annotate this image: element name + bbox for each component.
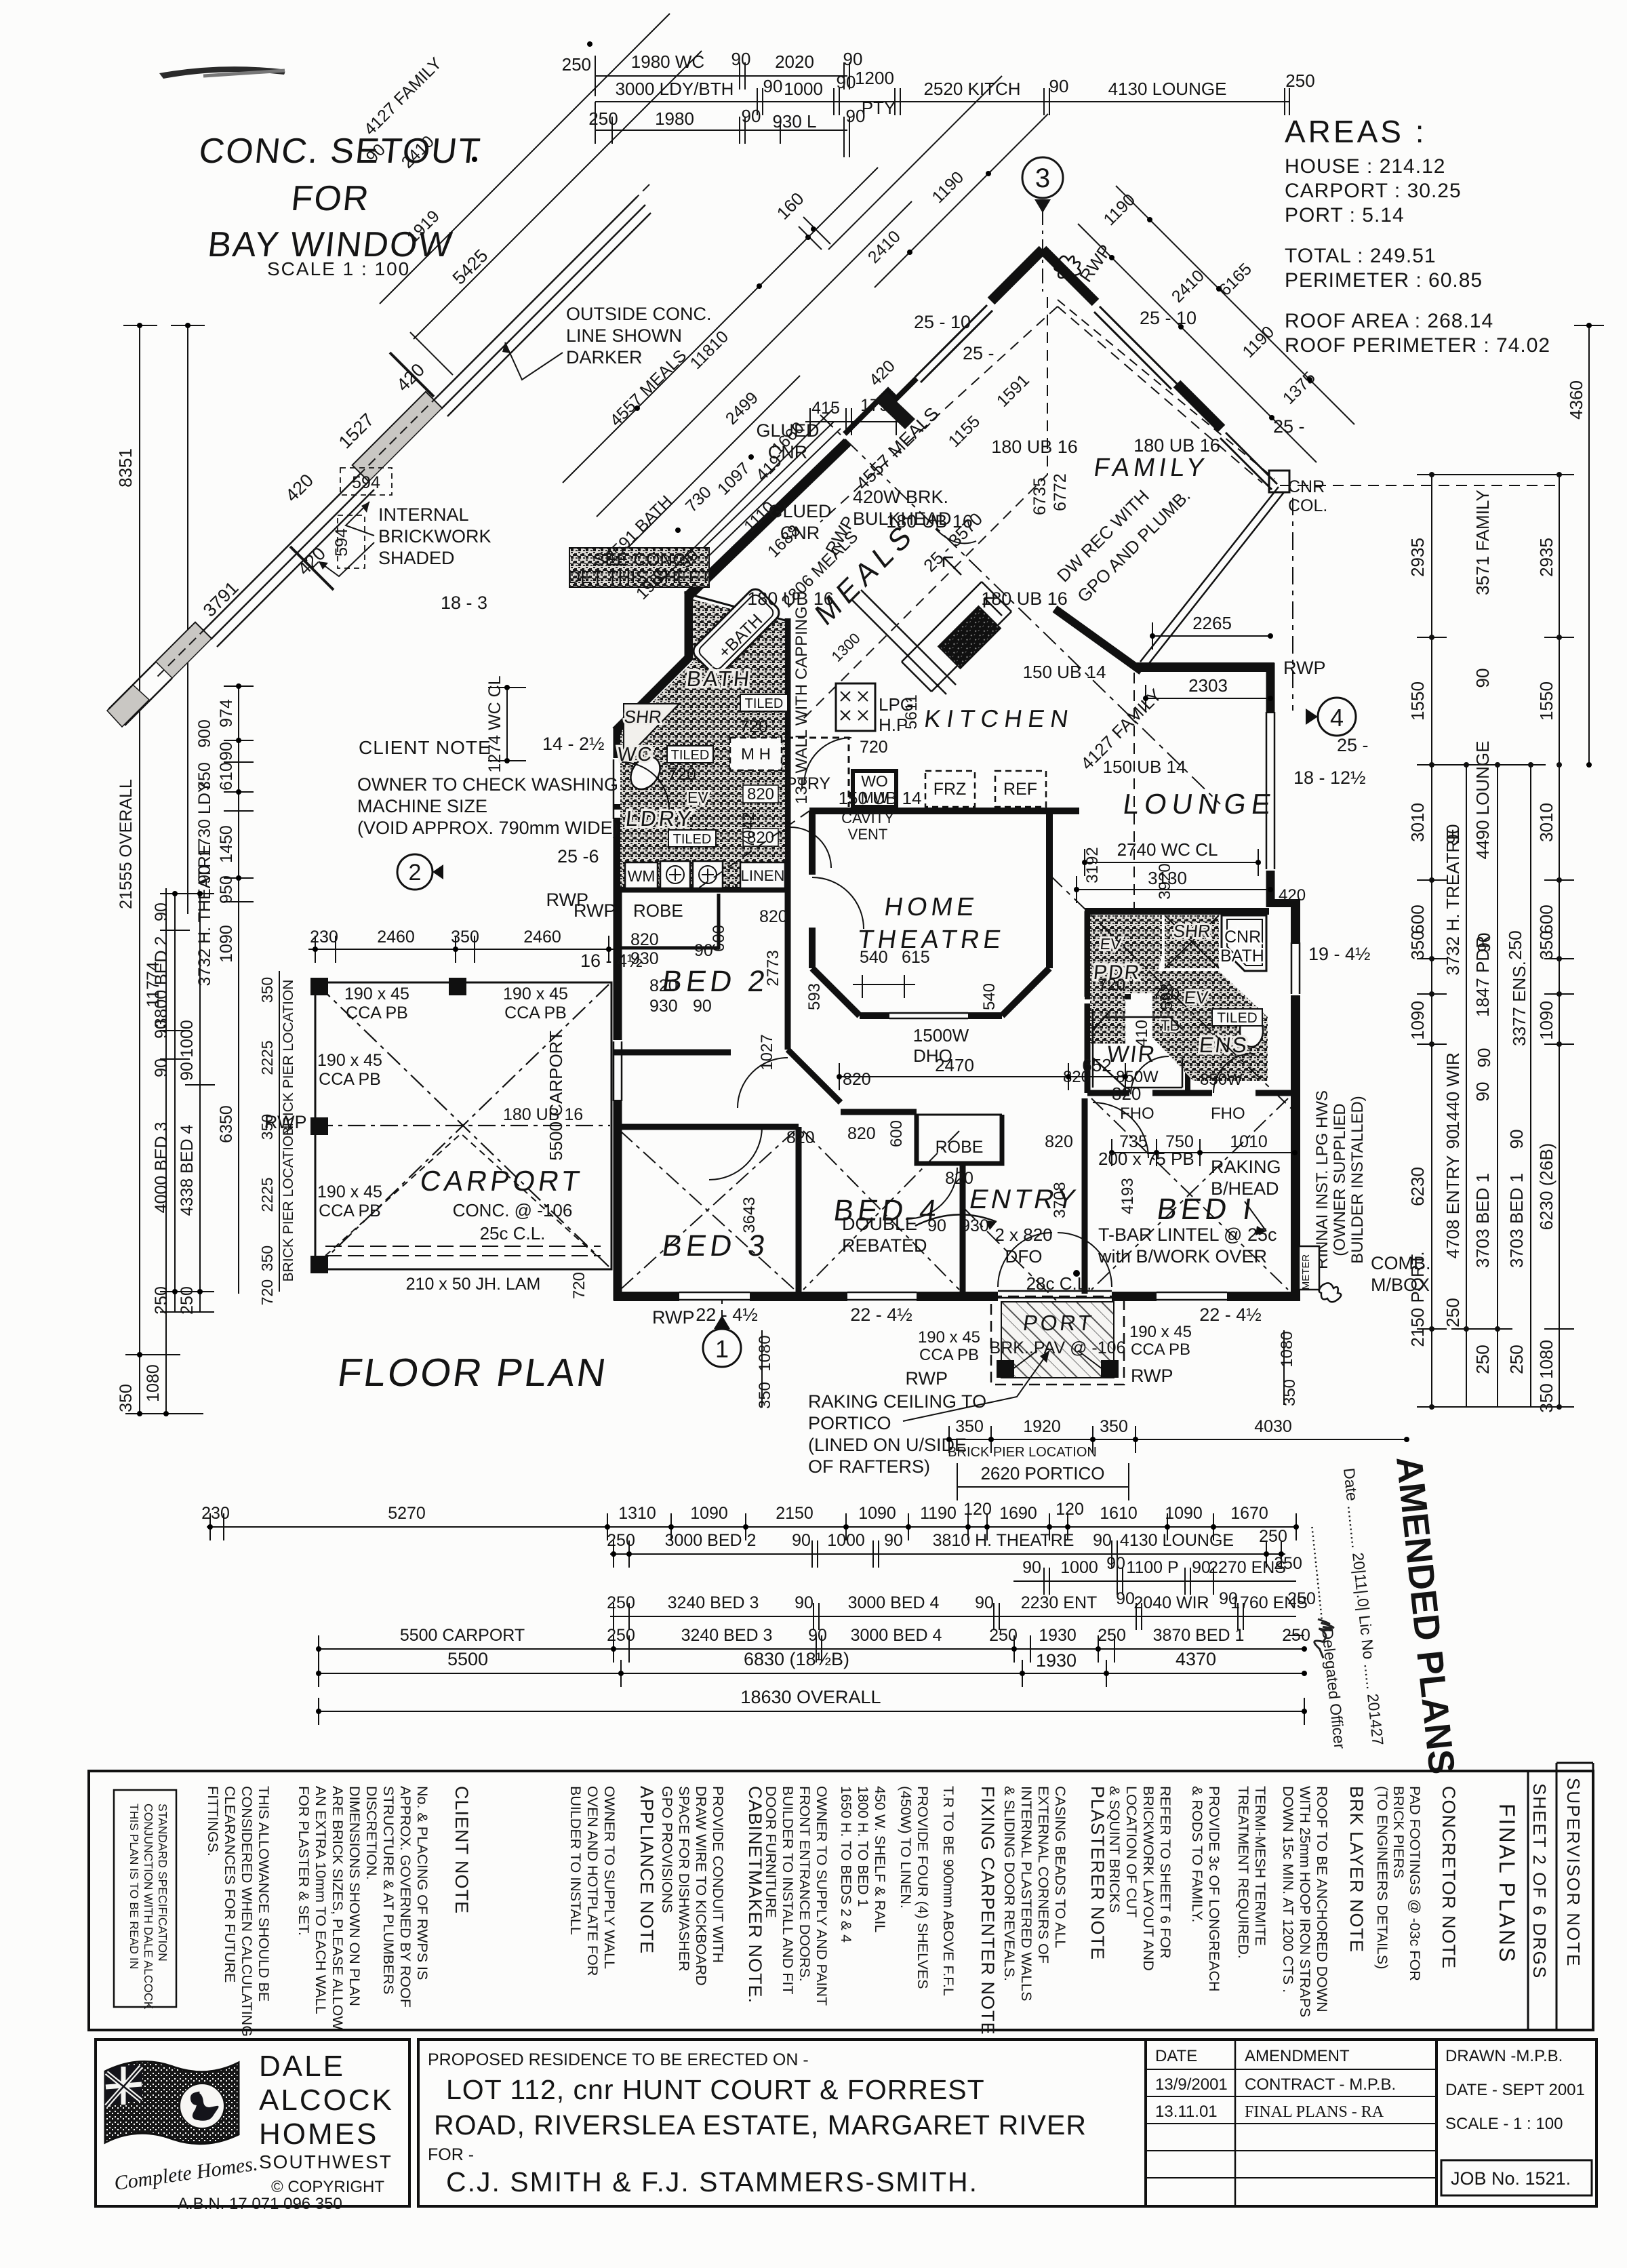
svg-text:RWP: RWP <box>574 900 616 921</box>
svg-text:350: 350 <box>117 1384 136 1412</box>
svg-text:610: 610 <box>217 762 236 791</box>
svg-text:DATE - SEPT 2001: DATE - SEPT 2001 <box>1445 2081 1585 2099</box>
svg-text:BRICK PIER LOCATION: BRICK PIER LOCATION <box>948 1445 1097 1460</box>
svg-text:820: 820 <box>759 907 788 926</box>
svg-text:BATH: BATH <box>685 667 752 691</box>
svg-text:3800 BED 2: 3800 BED 2 <box>152 936 171 1028</box>
svg-text:21555 OVERALL: 21555 OVERALL <box>117 779 136 909</box>
svg-text:90: 90 <box>1506 1130 1527 1149</box>
svg-text:930 L: 930 L <box>772 111 816 132</box>
svg-text:ROBE: ROBE <box>633 900 683 921</box>
svg-text:3010: 3010 <box>1536 803 1556 842</box>
svg-text:850W: 850W <box>1200 1071 1243 1089</box>
svg-text:REBATED: REBATED <box>842 1235 927 1256</box>
svg-text:TILED: TILED <box>745 696 784 711</box>
svg-text:CONCRETOR NOTE: CONCRETOR NOTE <box>1439 1786 1459 1969</box>
svg-text:PROPOSED RESIDENCE TO BE ERECT: PROPOSED RESIDENCE TO BE ERECTED ON - <box>428 2050 809 2069</box>
svg-text:1310: 1310 <box>618 1504 656 1523</box>
svg-text:& RODS TO FAMILY.: & RODS TO FAMILY. <box>1189 1786 1205 1923</box>
svg-text:820: 820 <box>1045 1132 1073 1151</box>
svg-text:5500: 5500 <box>447 1649 488 1669</box>
svg-text:6230: 6230 <box>1407 1167 1428 1206</box>
svg-text:TOTAL : 249.51: TOTAL : 249.51 <box>1285 245 1437 267</box>
svg-text:FOR PLASTER & SET.: FOR PLASTER & SET. <box>296 1786 312 1936</box>
svg-text:METER: METER <box>1300 1254 1312 1290</box>
svg-text:EXTERNAL CORNERS OF: EXTERNAL CORNERS OF <box>1035 1786 1051 1964</box>
svg-text:TB: TB <box>1161 1017 1180 1034</box>
svg-text:BRICK PIERS: BRICK PIERS <box>1390 1786 1407 1878</box>
svg-text:SUPERVISOR NOTE: SUPERVISOR NOTE <box>1563 1778 1584 1967</box>
svg-text:DISCRETION.: DISCRETION. <box>363 1786 380 1880</box>
svg-text:14 - 2½: 14 - 2½ <box>542 734 605 754</box>
svg-text:90: 90 <box>837 72 856 92</box>
svg-text:THIS ALLOWANCE SHOULD BE: THIS ALLOWANCE SHOULD BE <box>256 1786 272 2002</box>
svg-text:2225: 2225 <box>258 1177 276 1212</box>
svg-text:1274 WC CL: 1274 WC CL <box>485 675 504 772</box>
svg-text:1080: 1080 <box>144 1364 163 1402</box>
svg-text:90: 90 <box>731 49 751 69</box>
svg-text:90: 90 <box>1474 1048 1494 1068</box>
svg-text:© COPYRIGHT: © COPYRIGHT <box>271 2178 384 2196</box>
svg-text:(OWNER SUPPLIED: (OWNER SUPPLIED <box>1331 1103 1349 1256</box>
svg-text:4708 ENTRY: 4708 ENTRY <box>1443 1155 1463 1259</box>
svg-text:OWNER TO SUPPLY AND PAINT: OWNER TO SUPPLY AND PAINT <box>813 1786 830 2006</box>
svg-text:1930: 1930 <box>1039 1626 1077 1645</box>
svg-text:1980: 1980 <box>655 108 694 129</box>
svg-text:HOME: HOME <box>883 892 980 921</box>
svg-text:2935: 2935 <box>1407 538 1428 577</box>
svg-text:1650 H. TO BEDS 2 & 4: 1650 H. TO BEDS 2 & 4 <box>838 1786 854 1943</box>
svg-text:974: 974 <box>217 699 236 728</box>
svg-text:820: 820 <box>847 1124 876 1143</box>
svg-text:25 - 10: 25 - 10 <box>1140 308 1197 328</box>
svg-text:90: 90 <box>742 106 761 126</box>
svg-text:1090: 1090 <box>217 925 236 963</box>
svg-text:OUTSIDE CONC.: OUTSIDE CONC. <box>566 304 712 324</box>
svg-text:T-BAR LINTEL @ 25c: T-BAR LINTEL @ 25c <box>1098 1225 1277 1245</box>
svg-text:820: 820 <box>945 1169 973 1188</box>
svg-text:CCA PB: CCA PB <box>919 1346 979 1364</box>
svg-text:LINEN: LINEN <box>741 867 785 884</box>
svg-text:with B/WORK OVER: with B/WORK OVER <box>1098 1246 1267 1267</box>
svg-text:PORT : 5.14: PORT : 5.14 <box>1285 204 1405 226</box>
svg-text:PAD FOOTINGS @ -03c FOR: PAD FOOTINGS @ -03c FOR <box>1407 1786 1423 1981</box>
svg-text:PROVIDE 3c OF LONGREACH: PROVIDE 3c OF LONGREACH <box>1206 1786 1222 1991</box>
svg-text:3643: 3643 <box>740 1197 759 1233</box>
svg-text:2040 WIR: 2040 WIR <box>1133 1593 1209 1612</box>
svg-text:250: 250 <box>607 1626 635 1645</box>
svg-text:90: 90 <box>1022 1558 1041 1577</box>
svg-text:150 UB 14: 150 UB 14 <box>1103 757 1186 777</box>
svg-text:250: 250 <box>588 108 618 129</box>
svg-text:22 - 4½: 22 - 4½ <box>1199 1305 1262 1325</box>
svg-text:FRZ: FRZ <box>933 780 967 799</box>
svg-text:PTY: PTY <box>862 98 896 118</box>
svg-text:FLOOR PLAN: FLOOR PLAN <box>335 1351 610 1395</box>
svg-text:25 - 10: 25 - 10 <box>914 312 971 332</box>
svg-text:3192: 3192 <box>1083 847 1102 883</box>
svg-text:350: 350 <box>1100 1417 1128 1436</box>
svg-text:820: 820 <box>843 1070 871 1089</box>
svg-text:6230 (26B): 6230 (26B) <box>1536 1143 1556 1231</box>
svg-text:450 W. SHELF & RAIL: 450 W. SHELF & RAIL <box>872 1786 888 1932</box>
svg-text:820: 820 <box>1112 1083 1141 1104</box>
svg-text:OVEN AND HOTPLATE FOR: OVEN AND HOTPLATE FOR <box>584 1786 601 1976</box>
svg-text:INTERNAL PLASTERED WALLS: INTERNAL PLASTERED WALLS <box>1018 1786 1035 2001</box>
svg-text:ARE BRICK SIZES, PLEASE ALLOW: ARE BRICK SIZES, PLEASE ALLOW <box>329 1786 346 2030</box>
svg-text:2230 ENT: 2230 ENT <box>1021 1593 1098 1612</box>
svg-text:BUILDER TO INSTALL AND FIT: BUILDER TO INSTALL AND FIT <box>780 1786 796 1994</box>
svg-text:2740 WC CL: 2740 WC CL <box>1117 839 1218 860</box>
svg-text:AREAS :: AREAS : <box>1285 114 1427 149</box>
svg-text:1500W: 1500W <box>913 1025 969 1046</box>
svg-text:4490 LOUNGE: 4490 LOUNGE <box>1472 741 1493 860</box>
svg-text:90: 90 <box>884 1531 903 1550</box>
svg-text:BED 3: BED 3 <box>660 1229 771 1262</box>
svg-text:C.J. SMITH & F.J. STAMMERS-SMI: C.J. SMITH & F.J. STAMMERS-SMITH. <box>446 2166 978 2197</box>
svg-text:(450W) TO LINEN.: (450W) TO LINEN. <box>898 1786 914 1909</box>
svg-text:1847 PDR: 1847 PDR <box>1472 936 1493 1017</box>
svg-text:SHADED: SHADED <box>378 548 455 568</box>
svg-text:720: 720 <box>258 1279 276 1305</box>
svg-text:350: 350 <box>756 1382 774 1409</box>
svg-text:DOUBLE: DOUBLE <box>842 1214 917 1234</box>
svg-text:250: 250 <box>607 1531 635 1550</box>
svg-text:2773: 2773 <box>764 950 782 986</box>
svg-text:180 UB 16: 180 UB 16 <box>991 437 1078 457</box>
svg-text:250: 250 <box>1505 930 1525 959</box>
svg-text:820: 820 <box>649 976 678 995</box>
svg-text:DOWN 15c MIN. AT 1200 CTS .: DOWN 15c MIN. AT 1200 CTS . <box>1280 1786 1296 1993</box>
svg-text:2935: 2935 <box>1536 538 1556 577</box>
svg-text:3000 BED 2: 3000 BED 2 <box>665 1531 757 1550</box>
svg-text:3810 H. THEATRE: 3810 H. THEATRE <box>933 1531 1074 1550</box>
svg-text:2 x 820: 2 x 820 <box>995 1225 1052 1245</box>
svg-text:6350: 6350 <box>217 1105 236 1143</box>
svg-text:2150: 2150 <box>776 1504 813 1523</box>
svg-text:CNR: CNR <box>1288 477 1325 496</box>
svg-text:820: 820 <box>630 930 659 949</box>
svg-text:DATE: DATE <box>1155 2047 1197 2065</box>
svg-text:420: 420 <box>1279 886 1306 904</box>
svg-text:3240 BED 3: 3240 BED 3 <box>668 1593 759 1612</box>
svg-text:4130 LOUNGE: 4130 LOUNGE <box>1108 79 1227 99</box>
svg-text:2620 PORTICO: 2620 PORTICO <box>980 1463 1104 1484</box>
svg-text:CNR: CNR <box>780 523 820 543</box>
svg-text:DALE: DALE <box>259 2050 345 2083</box>
svg-text:SHR: SHR <box>1172 921 1211 941</box>
svg-text:250: 250 <box>152 1286 171 1315</box>
svg-text:HOUSE : 214.12: HOUSE : 214.12 <box>1285 155 1445 178</box>
svg-text:230: 230 <box>310 928 338 947</box>
svg-text:3703 BED 1: 3703 BED 1 <box>1472 1173 1493 1268</box>
svg-text:RWP: RWP <box>652 1307 695 1328</box>
svg-text:720: 720 <box>570 1272 588 1299</box>
svg-text:BATH: BATH <box>1220 947 1264 966</box>
svg-text:8351: 8351 <box>115 448 136 488</box>
svg-text:2225: 2225 <box>258 1040 276 1075</box>
svg-text:1450: 1450 <box>217 825 236 863</box>
svg-text:2150 PORT.: 2150 PORT. <box>1407 1251 1428 1347</box>
svg-text:410: 410 <box>1133 1020 1151 1047</box>
svg-text:210 x 50 JH. LAM: 210 x 50 JH. LAM <box>406 1275 541 1294</box>
svg-text:TILED: TILED <box>1217 1010 1258 1026</box>
svg-text:FHO: FHO <box>1211 1105 1245 1123</box>
svg-text:CCA PB: CCA PB <box>319 1201 381 1220</box>
svg-text:13c WALL WITH CAPPING: 13c WALL WITH CAPPING <box>792 606 811 804</box>
svg-text:250: 250 <box>1274 1554 1302 1573</box>
svg-text:350: 350 <box>258 1114 276 1140</box>
svg-text:25 -: 25 - <box>963 343 995 363</box>
svg-text:2020: 2020 <box>775 52 814 72</box>
svg-text:LOUNGE: LOUNGE <box>1121 788 1279 820</box>
svg-text:1090: 1090 <box>690 1504 728 1523</box>
svg-text:350: 350 <box>955 1417 984 1436</box>
svg-text:150 UB 14: 150 UB 14 <box>1023 662 1106 682</box>
svg-text:593: 593 <box>1158 983 1176 1010</box>
svg-text:1000: 1000 <box>178 1020 197 1058</box>
svg-text:TREATMENT REQUIRED.: TREATMENT REQUIRED. <box>1235 1786 1251 1959</box>
svg-text:FRONT ENTRANCE DOORS.: FRONT ENTRANCE DOORS. <box>797 1786 813 1982</box>
svg-text:T.R TO BE 900mm ABOVE F.F.L: T.R TO BE 900mm ABOVE F.F.L <box>940 1786 957 1996</box>
svg-text:ROOF PERIMETER : 74.02: ROOF PERIMETER : 74.02 <box>1285 334 1550 357</box>
svg-text:SOUTHWEST: SOUTHWEST <box>259 2151 393 2172</box>
svg-text:CLIENT NOTE: CLIENT NOTE <box>359 737 491 758</box>
svg-text:3732 H. TREATRE: 3732 H. TREATRE <box>1443 828 1463 975</box>
svg-text:7042: 7042 <box>740 812 758 848</box>
svg-text:SPACE FOR DISHWASHER: SPACE FOR DISHWASHER <box>676 1786 692 1972</box>
svg-text:CAVITY: CAVITY <box>841 810 894 827</box>
svg-text:RWP: RWP <box>1283 658 1326 678</box>
svg-text:TILED: TILED <box>671 748 710 763</box>
svg-text:RWP: RWP <box>1131 1366 1173 1386</box>
svg-text:MACHINE SIZE: MACHINE SIZE <box>357 796 487 816</box>
svg-text:SCALE 1 : 100: SCALE 1 : 100 <box>267 258 410 279</box>
svg-text:FAMILY: FAMILY <box>1092 453 1210 482</box>
svg-text:230: 230 <box>201 1504 230 1523</box>
svg-text:BRICKWORK: BRICKWORK <box>378 526 491 546</box>
svg-text:5500 CARPORT: 5500 CARPORT <box>400 1626 525 1645</box>
svg-text:180 UB 16: 180 UB 16 <box>1133 435 1220 456</box>
svg-text:250: 250 <box>1098 1626 1126 1645</box>
svg-text:LOT 112, cnr HUNT COURT & FORR: LOT 112, cnr HUNT COURT & FORREST <box>446 2074 985 2105</box>
svg-text:350: 350 <box>1407 930 1428 959</box>
svg-text:STANDARD SPECIFICATION: STANDARD SPECIFICATION <box>156 1804 169 1962</box>
svg-text:600: 600 <box>1536 904 1556 934</box>
svg-text:594: 594 <box>332 528 351 557</box>
svg-text:3010: 3010 <box>1407 803 1428 842</box>
svg-text:CLIENT NOTE: CLIENT NOTE <box>451 1786 472 1914</box>
svg-text:90: 90 <box>846 106 866 126</box>
svg-text:BRK LAYER NOTE: BRK LAYER NOTE <box>1346 1786 1367 1953</box>
svg-text:2303: 2303 <box>1188 675 1228 696</box>
svg-text:2265: 2265 <box>1192 613 1232 633</box>
svg-text:13/9/2001: 13/9/2001 <box>1155 2075 1228 2094</box>
svg-text:1670: 1670 <box>1230 1504 1268 1523</box>
svg-text:1: 1 <box>715 1335 729 1363</box>
svg-text:350: 350 <box>451 928 479 947</box>
svg-text:930: 930 <box>649 997 678 1016</box>
svg-text:4193: 4193 <box>1119 1178 1137 1214</box>
svg-text:1190: 1190 <box>920 1504 957 1523</box>
svg-text:(TO ENGINEERS DETAILS): (TO ENGINEERS DETAILS) <box>1374 1786 1390 1969</box>
svg-text:4370: 4370 <box>1176 1649 1216 1669</box>
svg-text:ROOF TO BE ANCHORED DOWN: ROOF TO BE ANCHORED DOWN <box>1314 1786 1330 2012</box>
svg-text:FITTINGS.: FITTINGS. <box>205 1786 221 1856</box>
svg-text:6830 (18½B): 6830 (18½B) <box>744 1649 849 1669</box>
svg-text:22 - 4½: 22 - 4½ <box>696 1305 758 1325</box>
svg-text:WM: WM <box>628 867 656 885</box>
svg-text:TERMI-MESH TERMITE: TERMI-MESH TERMITE <box>1252 1786 1268 1946</box>
svg-text:APPROX. GOVERNED BY ROOF: APPROX. GOVERNED BY ROOF <box>397 1786 414 2008</box>
svg-text:3708: 3708 <box>1051 1182 1069 1218</box>
svg-text:415: 415 <box>811 399 840 418</box>
svg-text:250: 250 <box>562 54 591 75</box>
svg-text:18 - 3: 18 - 3 <box>441 593 487 613</box>
svg-text:BRK..PAV @ -106: BRK..PAV @ -106 <box>990 1338 1126 1357</box>
svg-text:1690: 1690 <box>999 1504 1037 1523</box>
svg-text:2470: 2470 <box>935 1055 974 1075</box>
svg-text:CONC. SETOUT: CONC. SETOUT <box>197 132 483 171</box>
svg-text:1090: 1090 <box>858 1504 896 1523</box>
svg-text:3240 BED 3: 3240 BED 3 <box>681 1626 773 1645</box>
svg-text:1090: 1090 <box>1536 1001 1556 1040</box>
svg-text:AN EXTRA 10mm TO EACH WALL: AN EXTRA 10mm TO EACH WALL <box>313 1786 329 2014</box>
svg-text:25c C.L.: 25c C.L. <box>480 1223 546 1244</box>
svg-text:190 x 45: 190 x 45 <box>918 1328 980 1347</box>
svg-text:ALCOCK: ALCOCK <box>259 2084 394 2117</box>
svg-text:90: 90 <box>693 997 712 1016</box>
svg-text:4338 BED 4: 4338 BED 4 <box>178 1125 197 1216</box>
svg-text:1090: 1090 <box>1407 1001 1428 1040</box>
svg-text:90: 90 <box>1192 1558 1211 1577</box>
svg-text:LDRY: LDRY <box>624 806 696 831</box>
svg-text:BUILDER INSTALLED): BUILDER INSTALLED) <box>1348 1096 1367 1264</box>
svg-text:DRAW WIRE TO KICKBOARD: DRAW WIRE TO KICKBOARD <box>693 1786 709 1986</box>
svg-text:90: 90 <box>975 1593 994 1612</box>
svg-text:190 x 45: 190 x 45 <box>503 984 568 1003</box>
svg-text:18630 OVERALL: 18630 OVERALL <box>740 1687 881 1707</box>
svg-text:18 - 12½: 18 - 12½ <box>1293 768 1366 788</box>
svg-text:3703 BED 1: 3703 BED 1 <box>1506 1173 1527 1268</box>
svg-text:615: 615 <box>902 948 930 967</box>
svg-text:900: 900 <box>195 719 214 748</box>
svg-text:350: 350 <box>258 977 276 1003</box>
svg-text:720: 720 <box>668 765 696 784</box>
svg-text:1080: 1080 <box>756 1335 774 1371</box>
svg-text:950: 950 <box>217 875 236 904</box>
svg-text:CCA PB: CCA PB <box>319 1070 381 1089</box>
svg-text:4000 BED 3: 4000 BED 3 <box>152 1122 171 1214</box>
svg-text:EV: EV <box>687 789 708 806</box>
svg-text:250: 250 <box>1259 1527 1287 1546</box>
svg-text:FINAL PLANS - RA: FINAL PLANS - RA <box>1245 2103 1384 2121</box>
svg-text:4360: 4360 <box>1566 380 1586 420</box>
svg-text:90: 90 <box>1443 1130 1463 1149</box>
svg-text:25 -: 25 - <box>1337 735 1369 755</box>
svg-text:4130 LOUNGE: 4130 LOUNGE <box>1120 1531 1234 1550</box>
svg-text:SHR: SHR <box>623 707 662 727</box>
svg-text:OWNER TO SUPPLY WALL: OWNER TO SUPPLY WALL <box>601 1786 618 1969</box>
svg-text:THIS PLAN IS TO BE READ IN: THIS PLAN IS TO BE READ IN <box>127 1804 141 1969</box>
svg-text:25 -: 25 - <box>1273 416 1305 437</box>
svg-text:190 x 45: 190 x 45 <box>1129 1323 1192 1341</box>
svg-text:M H: M H <box>741 745 771 763</box>
svg-text:250: 250 <box>1443 1298 1463 1327</box>
svg-text:3732 H. THEATRE: 3732 H. THEATRE <box>195 845 214 987</box>
svg-text:& SQUINT BRICKS: & SQUINT BRICKS <box>1106 1786 1123 1913</box>
svg-text:600: 600 <box>1407 904 1428 934</box>
svg-text:PROVIDE FOUR (4) SHELVES: PROVIDE FOUR (4) SHELVES <box>915 1786 931 1989</box>
svg-text:25 -6: 25 -6 <box>557 846 599 867</box>
svg-text:250: 250 <box>607 1593 635 1612</box>
svg-text:CONJUNCTION WITH DALE ALCOCK: CONJUNCTION WITH DALE ALCOCK <box>142 1804 155 2010</box>
svg-text:120: 120 <box>1056 1500 1084 1519</box>
svg-text:CONSIDERED WHEN CALCULATING: CONSIDERED WHEN CALCULATING <box>239 1786 255 2037</box>
svg-text:5270: 5270 <box>388 1504 426 1523</box>
svg-text:16 - 4½: 16 - 4½ <box>580 951 643 971</box>
svg-text:5500 CARPORT: 5500 CARPORT <box>546 1031 566 1161</box>
svg-text:INTERNAL: INTERNAL <box>378 504 469 525</box>
svg-text:250: 250 <box>178 1286 197 1315</box>
svg-text:1000: 1000 <box>827 1531 865 1550</box>
svg-text:FHO: FHO <box>1120 1105 1154 1123</box>
svg-text:720: 720 <box>860 738 888 757</box>
svg-text:593: 593 <box>805 983 824 1010</box>
svg-text:90: 90 <box>152 902 171 921</box>
svg-text:CONTRACT - M.P.B.: CONTRACT - M.P.B. <box>1245 2075 1396 2094</box>
svg-text:1980 WC: 1980 WC <box>631 52 704 72</box>
svg-text:1550: 1550 <box>1536 681 1556 721</box>
svg-text:1930: 1930 <box>1036 1650 1077 1671</box>
svg-text:1000: 1000 <box>784 79 823 99</box>
svg-text:250: 250 <box>1506 1345 1527 1374</box>
svg-text:190 x 45: 190 x 45 <box>344 984 409 1003</box>
svg-text:3000 LDY/BTH: 3000 LDY/BTH <box>616 79 734 99</box>
svg-text:180 UB 16: 180 UB 16 <box>981 589 1068 609</box>
svg-text:DIMENSIONS SHOWN ON PLAN: DIMENSIONS SHOWN ON PLAN <box>346 1786 363 2006</box>
svg-text:ENS: ENS <box>1198 1033 1249 1057</box>
svg-text:5611: 5611 <box>902 694 921 730</box>
svg-text:CNR: CNR <box>1224 928 1261 947</box>
svg-text:1610: 1610 <box>1100 1504 1138 1523</box>
svg-text:90: 90 <box>1093 1531 1112 1550</box>
svg-text:600: 600 <box>887 1120 906 1147</box>
svg-text:250: 250 <box>1472 1345 1493 1374</box>
svg-text:180 UB 16: 180 UB 16 <box>503 1105 583 1124</box>
svg-text:1440 WIR: 1440 WIR <box>1443 1052 1463 1131</box>
svg-text:190 x 45: 190 x 45 <box>317 1182 382 1201</box>
svg-text:350: 350 <box>1536 930 1556 959</box>
svg-text:250: 250 <box>989 1626 1018 1645</box>
svg-text:AMENDMENT: AMENDMENT <box>1245 2047 1350 2065</box>
svg-text:19 - 4½: 19 - 4½ <box>1308 944 1371 964</box>
svg-text:1550: 1550 <box>1407 681 1428 721</box>
svg-text:PLASTERER NOTE: PLASTERER NOTE <box>1087 1786 1108 1960</box>
svg-text:LOCATION OF CUT: LOCATION OF CUT <box>1123 1786 1140 1917</box>
svg-text:TILED: TILED <box>673 832 712 847</box>
svg-text:1100 P: 1100 P <box>1126 1558 1178 1577</box>
svg-text:13.11.01: 13.11.01 <box>1155 2103 1218 2121</box>
svg-text:3000 BED 4: 3000 BED 4 <box>851 1626 942 1645</box>
svg-text:JOB No. 1521.: JOB No. 1521. <box>1451 2168 1571 2189</box>
svg-text:SHEET 2 OF 6 DRGS: SHEET 2 OF 6 DRGS <box>1529 1783 1550 1979</box>
svg-text:90: 90 <box>1049 76 1069 96</box>
svg-text:WITH 25mm HOOP IRON STRAPS: WITH 25mm HOOP IRON STRAPS <box>1297 1786 1313 2017</box>
svg-text:540: 540 <box>980 983 999 1010</box>
svg-text:PORTICO: PORTICO <box>808 1413 891 1433</box>
svg-text:1800 H. TO BED 1: 1800 H. TO BED 1 <box>855 1786 871 1907</box>
